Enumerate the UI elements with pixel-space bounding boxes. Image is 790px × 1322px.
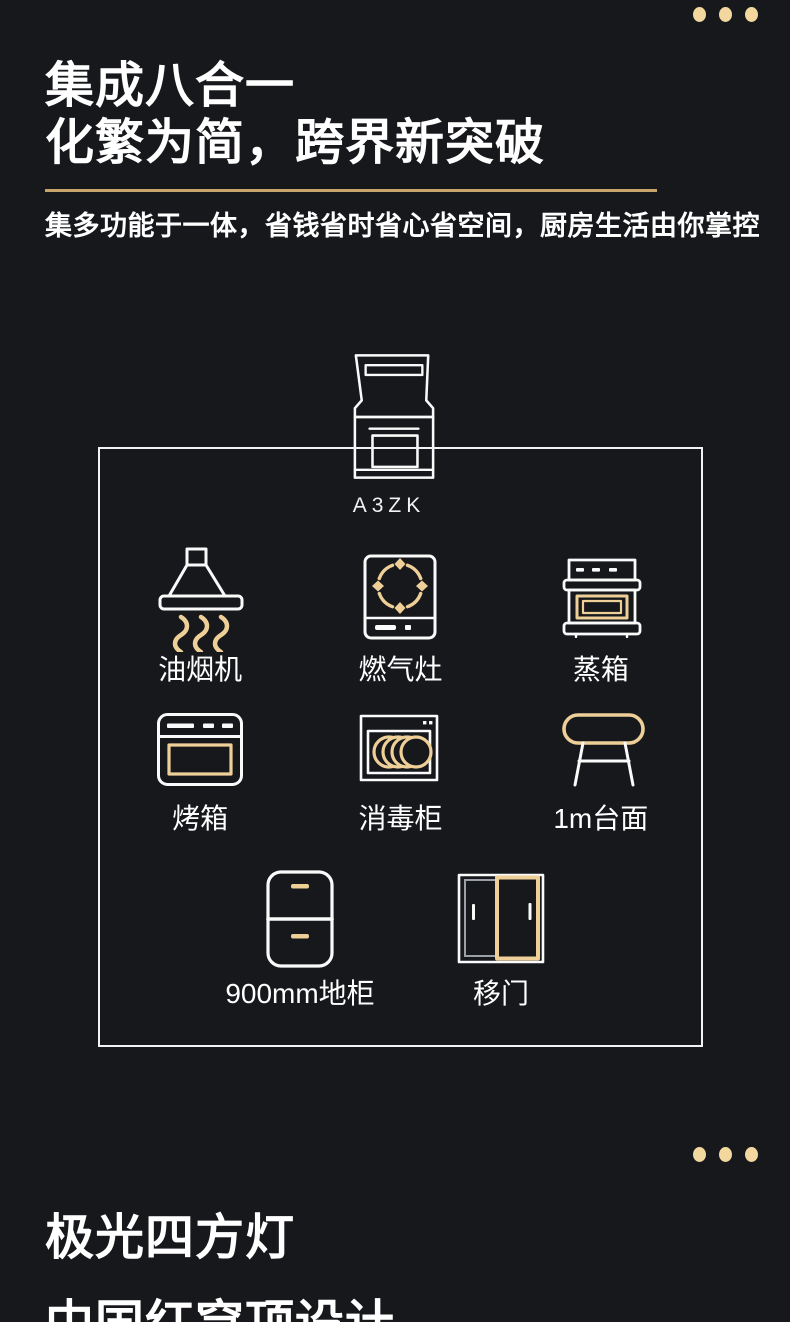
feature-row-2: 烤箱 消毒柜 xyxy=(100,700,701,836)
gold-divider xyxy=(45,189,657,192)
feature-label: 油烟机 xyxy=(158,653,242,687)
feature-countertop: 1m台面 xyxy=(501,700,701,836)
dot-icon xyxy=(719,1147,732,1162)
disinfection-cabinet-icon xyxy=(359,700,441,798)
feature-oven: 烤箱 xyxy=(100,700,300,836)
dot-icon xyxy=(745,7,758,22)
feature-base-cabinet: 900mm地柜 xyxy=(200,865,401,1011)
footer-title-line2: 中国红穹顶设计 xyxy=(45,1296,395,1322)
feature-label: 消毒柜 xyxy=(358,802,442,836)
feature-label: 移门 xyxy=(473,977,529,1011)
ellipsis-dots-icon xyxy=(693,1147,758,1162)
oven-icon xyxy=(156,700,244,798)
feature-label: 燃气灶 xyxy=(358,653,442,687)
feature-row-3: 900mm地柜 移门 xyxy=(100,865,701,1011)
gas-stove-icon xyxy=(363,545,438,649)
base-cabinet-icon xyxy=(265,865,335,973)
dot-icon xyxy=(693,1147,706,1162)
feature-disinfection-cabinet: 消毒柜 xyxy=(300,700,500,836)
promo-page: 集成八合一 化繁为简，跨界新突破 集多功能于一体，省钱省时省心省空间，厨房生活由… xyxy=(0,0,790,1322)
feature-row-1: 油烟机 xyxy=(100,545,701,687)
hero-subtitle: 集多功能于一体，省钱省时省心省空间，厨房生活由你掌控 xyxy=(45,210,760,242)
countertop-icon xyxy=(551,700,651,798)
feature-box: 油烟机 xyxy=(98,447,703,1047)
sliding-door-icon xyxy=(457,865,545,973)
feature-label: 900mm地柜 xyxy=(225,977,374,1011)
steam-oven-icon xyxy=(559,545,643,649)
hero-title-line1: 集成八合一 xyxy=(45,58,545,115)
ellipsis-dots-icon xyxy=(693,7,758,22)
hero-title-line2: 化繁为简，跨界新突破 xyxy=(45,115,545,172)
feature-range-hood: 油烟机 xyxy=(100,545,300,687)
dot-icon xyxy=(745,1147,758,1162)
feature-label: 1m台面 xyxy=(553,802,648,836)
dot-icon xyxy=(719,7,732,22)
feature-gas-stove: 燃气灶 xyxy=(300,545,500,687)
feature-sliding-door: 移门 xyxy=(401,865,602,1011)
dot-icon xyxy=(693,7,706,22)
footer-title-line1: 极光四方灯 xyxy=(45,1210,295,1267)
feature-steam-oven: 蒸箱 xyxy=(501,545,701,687)
hero-title: 集成八合一 化繁为简，跨界新突破 xyxy=(45,58,545,172)
feature-label: 蒸箱 xyxy=(573,653,629,687)
feature-label: 烤箱 xyxy=(172,802,228,836)
range-hood-icon xyxy=(155,545,245,649)
